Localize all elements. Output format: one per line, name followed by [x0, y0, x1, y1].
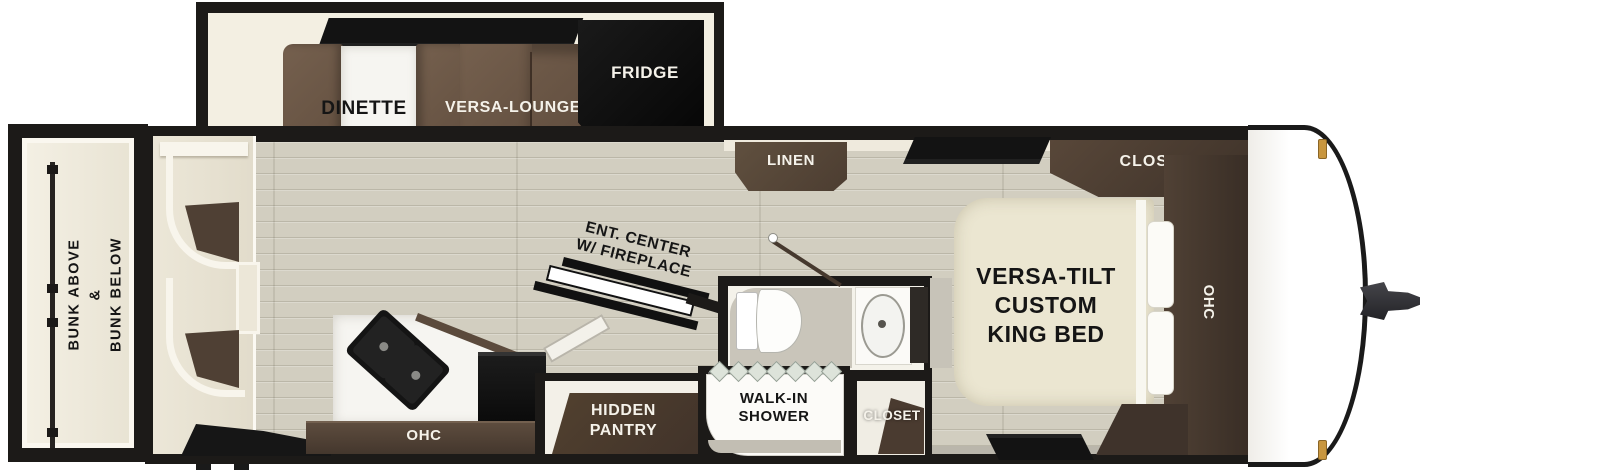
bath-corridor: [930, 278, 952, 368]
front-cap: [1248, 125, 1368, 467]
sink-drain: [878, 320, 886, 328]
hidden-pantry-label: HIDDEN PANTRY: [552, 401, 695, 440]
bunk-ladder-rung: [47, 165, 58, 174]
bunk-ladder-rung: [47, 428, 58, 437]
dinette-label: DINETTE: [303, 97, 425, 120]
toilet: [736, 292, 758, 350]
pillow: [1147, 311, 1174, 395]
vanity-mirror: [910, 287, 928, 363]
linen-label: LINEN: [735, 152, 847, 170]
versa-lounge-label: VERSA-LOUNGE: [440, 98, 586, 118]
floorplan-canvas: DINETTE VERSA-LOUNGE FRIDGE LINEN ENT. C…: [0, 0, 1600, 476]
stabilizer-mark: [234, 464, 249, 470]
bunk-ladder-rung: [47, 284, 58, 293]
marker-light-bottom: [1318, 440, 1327, 460]
king-bed-label: VERSA-TILT CUSTOM KING BED: [952, 262, 1140, 348]
pillow: [1147, 221, 1174, 308]
bedroom-ohc-label: OHC: [1199, 282, 1217, 322]
fridge-label: FRIDGE: [586, 63, 704, 84]
bunk-ladder-rail: [50, 162, 55, 448]
shower-label: WALK-IN SHOWER: [706, 390, 842, 427]
shower-base: [708, 440, 841, 453]
window-bedroom-bottom: [986, 434, 1094, 460]
bunk-ladder-rung: [47, 318, 58, 327]
kitchen-ohc-label: OHC: [306, 427, 542, 445]
window-hall-top: [903, 137, 1051, 164]
bath-closet-label: CLOSET: [852, 408, 932, 424]
stabilizer-mark: [196, 464, 211, 470]
door-handle: [768, 233, 778, 243]
marker-light-top: [1318, 139, 1327, 159]
bunk-label: BUNK ABOVE & BUNK BELOW: [64, 185, 127, 405]
hitch-coupler: [1360, 282, 1420, 320]
